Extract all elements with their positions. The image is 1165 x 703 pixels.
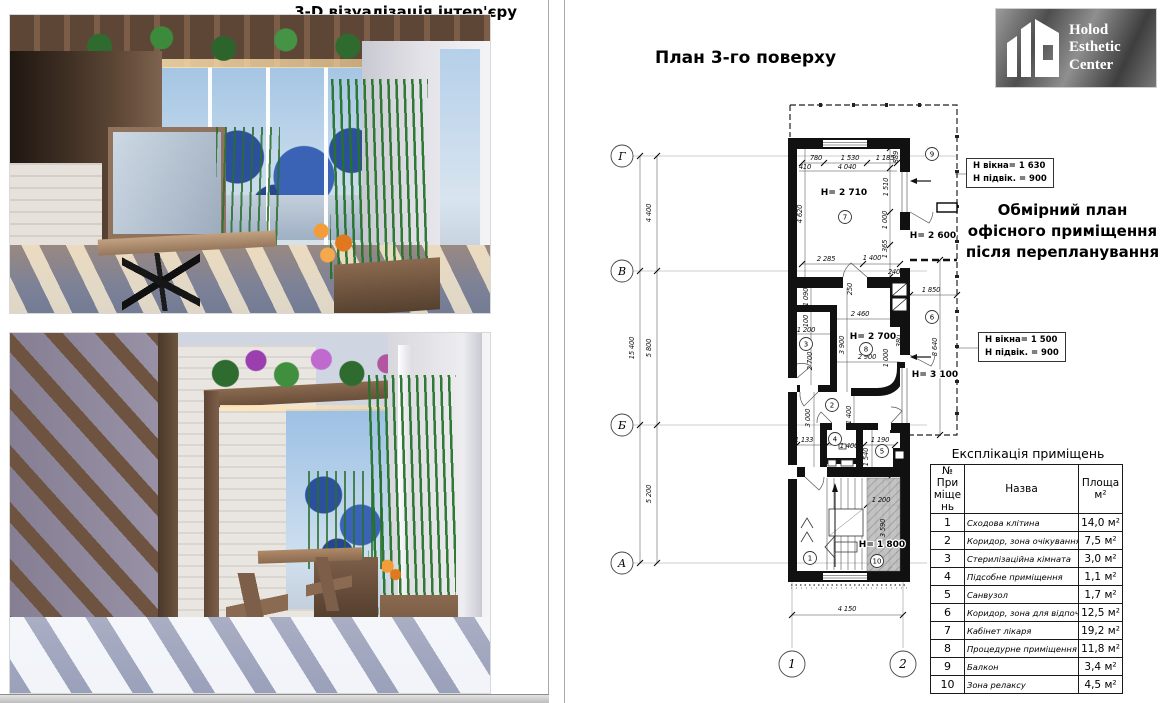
- axis-number: 2: [898, 657, 907, 671]
- axis-letter: Б: [617, 419, 626, 432]
- cell-name: Стерилізаційна кімната: [965, 550, 1079, 568]
- bottom-scrollbar[interactable]: [0, 694, 549, 703]
- rooms-table: № Приміщень Назва Площа м² 1Сходова кліт…: [930, 464, 1123, 694]
- dim-label: 1 000: [881, 211, 889, 229]
- cell-area: 14,0 м²: [1079, 514, 1123, 532]
- height-label: H= 1 800: [859, 540, 905, 550]
- led-strip: [220, 405, 388, 411]
- dim-label: 4 620: [796, 205, 804, 223]
- axis-number: 1: [788, 657, 796, 671]
- cell-name: Коридор, зона очікування: [965, 532, 1079, 550]
- dim-label: 1 400: [840, 442, 858, 450]
- dim-label: 15 400: [628, 337, 636, 360]
- entrance-arrows: [910, 178, 931, 360]
- dim-label: 4 040: [838, 163, 856, 171]
- cell-area: 1,7 м²: [1079, 586, 1123, 604]
- room-number: 9: [930, 150, 934, 158]
- room-number: 6: [930, 313, 935, 321]
- col-header-number: № Приміщень: [931, 465, 965, 514]
- cell-area: 19,2 м²: [1079, 622, 1123, 640]
- dim-label: 1 510: [882, 178, 890, 196]
- dim-label: 240: [888, 268, 900, 276]
- wood-planter: [334, 257, 440, 313]
- cell-area: 12,5 м²: [1079, 604, 1123, 622]
- panel-divider: [548, 0, 549, 703]
- dim-label: 1 400: [863, 254, 881, 262]
- cell-name: Процедурне приміщення: [965, 640, 1079, 658]
- dim-label: 1 850: [922, 286, 940, 294]
- balcony-column: [937, 203, 957, 212]
- explication-table: Експлікація приміщень № Приміщень Назва …: [930, 446, 1126, 694]
- cell-n: 1: [931, 514, 965, 532]
- cell-name: Підсобне приміщення: [965, 568, 1079, 586]
- dim-label: 780: [810, 154, 822, 162]
- dim-label: 3 590: [879, 519, 887, 537]
- z-chair: [306, 557, 352, 611]
- dim-label: 1 133: [795, 436, 813, 444]
- company-logo: Holod Esthetic Center: [995, 8, 1157, 88]
- dim-label: 5 800: [645, 339, 653, 357]
- dim-label: 410: [799, 163, 811, 171]
- height-label: H= 3 100: [912, 370, 958, 380]
- cell-n: 5: [931, 586, 965, 604]
- cell-name: Санвузол: [965, 586, 1079, 604]
- table-title: Експлікація приміщень: [930, 446, 1126, 461]
- cell-n: 9: [931, 658, 965, 676]
- col-header-name: Назва: [965, 465, 1079, 514]
- dim-label: 1 090: [802, 288, 810, 306]
- table-row: 8Процедурне приміщення11,8 м²: [931, 640, 1123, 658]
- table-row: 10Зона релаксу4,5 м²: [931, 676, 1123, 694]
- cell-name: Балкон: [965, 658, 1079, 676]
- room-number: 7: [843, 213, 847, 221]
- table-row: 1Сходова клітина14,0 м²: [931, 514, 1123, 532]
- dim-label: 250: [846, 283, 854, 295]
- room-number: 2: [830, 401, 834, 409]
- table-row: 6Коридор, зона для відпочинку12,5 м²: [931, 604, 1123, 622]
- dim-label: 1 200: [797, 326, 815, 334]
- dim-label: 8 640: [931, 338, 939, 356]
- cell-n: 4: [931, 568, 965, 586]
- dim-label: 2 700: [806, 352, 814, 370]
- table-row: 2Коридор, зона очікування7,5 м²: [931, 532, 1123, 550]
- dimension-lines: [637, 145, 978, 618]
- cell-area: 3,0 м²: [1079, 550, 1123, 568]
- room-number: 8: [864, 345, 868, 353]
- cell-n: 10: [931, 676, 965, 694]
- cell-area: 7,5 м²: [1079, 532, 1123, 550]
- dim-label: 1 365: [881, 240, 889, 258]
- cell-n: 3: [931, 550, 965, 568]
- explication-body: 1Сходова клітина14,0 м²2Коридор, зона оч…: [931, 514, 1123, 694]
- cell-name: Кабінет лікаря: [965, 622, 1079, 640]
- dim-label: 1 000: [882, 349, 890, 367]
- room-number: 3: [804, 340, 808, 348]
- sunlight-stripes: [10, 617, 490, 693]
- room-number: 5: [880, 447, 884, 455]
- cell-n: 2: [931, 532, 965, 550]
- panel-divider: [564, 0, 565, 703]
- axis-letter: Г: [617, 150, 626, 163]
- dim-label: 2 285: [817, 255, 835, 263]
- plan-title: План 3-го поверху: [655, 48, 836, 68]
- side-window: [440, 49, 480, 263]
- cell-n: 6: [931, 604, 965, 622]
- wire-chair: [122, 253, 200, 311]
- table-row: 4Підсобне приміщення1,1 м²: [931, 568, 1123, 586]
- green-plant: [216, 127, 280, 245]
- col-header-area: Площа м²: [1079, 465, 1123, 514]
- dim-label: 2 460: [851, 310, 869, 318]
- height-label: H= 2 600: [910, 231, 956, 241]
- dim-label: 1 400: [845, 406, 853, 424]
- render-photo-top: [10, 15, 490, 313]
- dim-label: 5 200: [645, 485, 653, 503]
- dim-label: 1 540: [862, 448, 870, 466]
- room-number: 4: [833, 435, 838, 443]
- dim-label: 1 200: [872, 496, 890, 504]
- axis-letter: А: [617, 557, 626, 570]
- dim-label: 3 000: [804, 409, 812, 427]
- cell-area: 3,4 м²: [1079, 658, 1123, 676]
- dim-label: 1 530: [841, 154, 859, 162]
- dim-label: 1 190: [871, 436, 889, 444]
- cell-n: 8: [931, 640, 965, 658]
- dim-label: 4 400: [645, 204, 653, 222]
- cell-area: 4,5 м²: [1079, 676, 1123, 694]
- table-row: 3Стерилізаційна кімната3,0 м²: [931, 550, 1123, 568]
- table-row: 5Санвузол1,7 м²: [931, 586, 1123, 604]
- cell-area: 1,1 м²: [1079, 568, 1123, 586]
- axis-letter: В: [617, 265, 626, 278]
- cell-name: Сходова клітина: [965, 514, 1079, 532]
- render-photo-bottom: [10, 333, 490, 693]
- logo-monogram-icon: [1001, 15, 1065, 81]
- dim-label: 4 150: [838, 605, 856, 613]
- mirror: [108, 127, 226, 239]
- cell-area: 11,8 м²: [1079, 640, 1123, 658]
- height-label: H= 2 700: [850, 332, 896, 342]
- page: { "colors": {"wall":"#111111","hatch_fil…: [0, 0, 1165, 703]
- logo-text: Holod Esthetic Center: [1069, 22, 1121, 74]
- table-row: 9Балкон3,4 м²: [931, 658, 1123, 676]
- dim-label: 889: [892, 151, 900, 163]
- room-number: 10: [873, 557, 882, 565]
- cell-name: Коридор, зона для відпочинку: [965, 604, 1079, 622]
- cell-n: 7: [931, 622, 965, 640]
- cell-name: Зона релаксу: [965, 676, 1079, 694]
- dim-label: 3 900: [838, 336, 846, 354]
- wood-frame: [204, 391, 219, 649]
- room-number: 1: [808, 554, 812, 562]
- table-row: 7Кабінет лікаря19,2 м²: [931, 622, 1123, 640]
- height-label: H= 2 710: [821, 188, 867, 198]
